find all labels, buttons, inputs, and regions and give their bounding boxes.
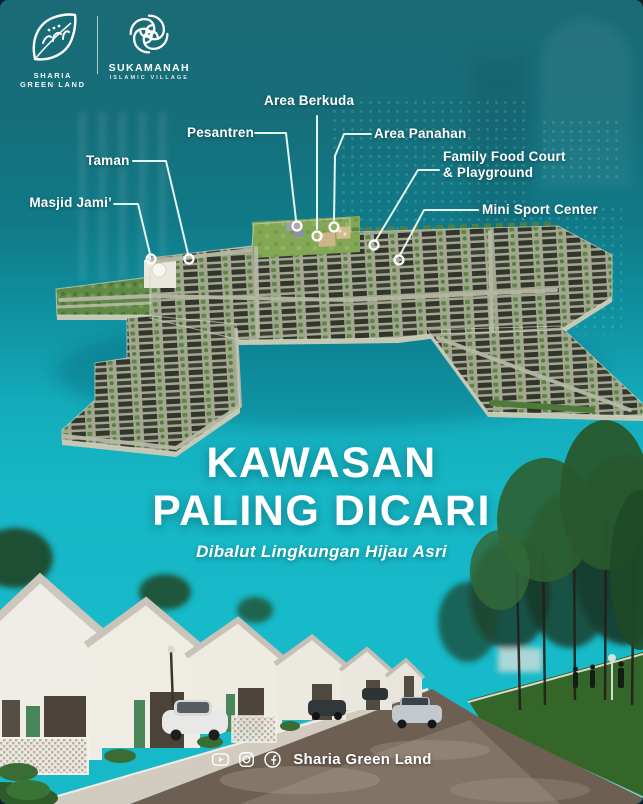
curb-line [468, 654, 643, 702]
knot-logo-icon [127, 13, 171, 55]
map-roads [58, 232, 630, 448]
sukamanah-tagline: ISLAMIC VILLAGE [109, 75, 190, 81]
brand-divider [97, 16, 98, 74]
leaf-logo-icon [27, 13, 79, 63]
masjid-marker [147, 255, 156, 264]
pedestrians [573, 661, 624, 688]
map-water-shadow [55, 317, 605, 427]
mosque-courtyard [144, 260, 176, 288]
headline-subtitle: Dibalut Lingkungan Hijau Asri [0, 542, 643, 562]
mosque-minaret [148, 256, 151, 268]
map-green-strip [56, 277, 151, 315]
map-details [56, 218, 643, 452]
food-court-line2: & Playground [443, 165, 566, 181]
sidewalk [30, 690, 430, 804]
sport-marker [395, 256, 404, 265]
headline-line2: PALING DICARI [0, 487, 643, 535]
house-row [0, 578, 424, 760]
distant-building [498, 648, 542, 672]
pesantren-building [286, 222, 301, 231]
footer-social-bar: Sharia Green Land [0, 750, 643, 769]
sukamanah-logo: SUKAMANAH ISLAMIC VILLAGE [109, 13, 190, 81]
panahan-marker [330, 223, 339, 232]
headline-line1: KAWASAN [0, 439, 643, 487]
map-right-arm [428, 326, 643, 416]
driving-silver-car [392, 697, 442, 729]
grass-strip [468, 652, 643, 796]
berkuda-marker [313, 232, 322, 241]
mosque-dome [152, 263, 166, 277]
callout-label-area-panahan: Area Panahan [374, 126, 466, 142]
green-door [134, 700, 145, 748]
callout-label-food-court: Family Food Court & Playground [443, 149, 566, 181]
brand-name-line1: SHARIA [20, 71, 86, 80]
hedge-row [492, 403, 592, 410]
callout-label-masjid: Masjid Jami’ [24, 195, 112, 211]
sport-line [400, 210, 478, 255]
parked-white-car [162, 700, 228, 741]
map-outline [56, 218, 643, 452]
horse-riding-area [318, 232, 336, 247]
map-plate-edge [56, 223, 643, 457]
parked-dark-car [308, 700, 346, 720]
street-lamp [168, 646, 175, 707]
distant-car [362, 688, 388, 700]
facebook-icon [263, 750, 282, 769]
callout-label-taman: Taman [86, 153, 130, 169]
sukamanah-name: SUKAMANAH [109, 62, 190, 74]
callout-markers [147, 222, 404, 265]
map-left-arm [62, 316, 240, 452]
masjid-line [114, 204, 150, 254]
pesantren-marker [293, 222, 302, 231]
poster-root: SHARIA GREEN LAND SUKAMANAH ISLAMIC VILL… [0, 0, 643, 804]
dot-grid-pattern [330, 98, 530, 266]
sharia-green-land-logo: SHARIA GREEN LAND [20, 13, 86, 89]
archery-area [336, 226, 351, 239]
youtube-icon [211, 750, 230, 769]
headline: KAWASAN PALING DICARI Dibalut Lingkungan… [0, 439, 643, 562]
callout-label-mini-sport-center: Mini Sport Center [482, 202, 598, 218]
callout-label-pesantren: Pesantren [187, 125, 254, 141]
instagram-icon [237, 750, 256, 769]
foodcourt-line [376, 170, 439, 240]
map-landmass [56, 216, 643, 452]
green-door [226, 694, 235, 732]
site-map [0, 0, 643, 804]
pesantren-line [255, 133, 296, 220]
taman-marker [185, 255, 194, 264]
footer-handle: Sharia Green Land [293, 751, 431, 768]
taman-line [133, 161, 188, 254]
foodcourt-marker [370, 241, 379, 250]
food-court-line1: Family Food Court [443, 149, 566, 165]
panahan-line [334, 134, 371, 220]
brand-name-line2: GREEN LAND [20, 80, 86, 89]
street-road [130, 689, 643, 804]
dot-grid-pattern [518, 205, 622, 335]
brand-header: SHARIA GREEN LAND SUKAMANAH ISLAMIC VILL… [20, 13, 190, 89]
map-pesantren-field [252, 216, 360, 258]
callout-label-area-berkuda: Area Berkuda [264, 93, 354, 109]
park-lamp [608, 654, 616, 700]
